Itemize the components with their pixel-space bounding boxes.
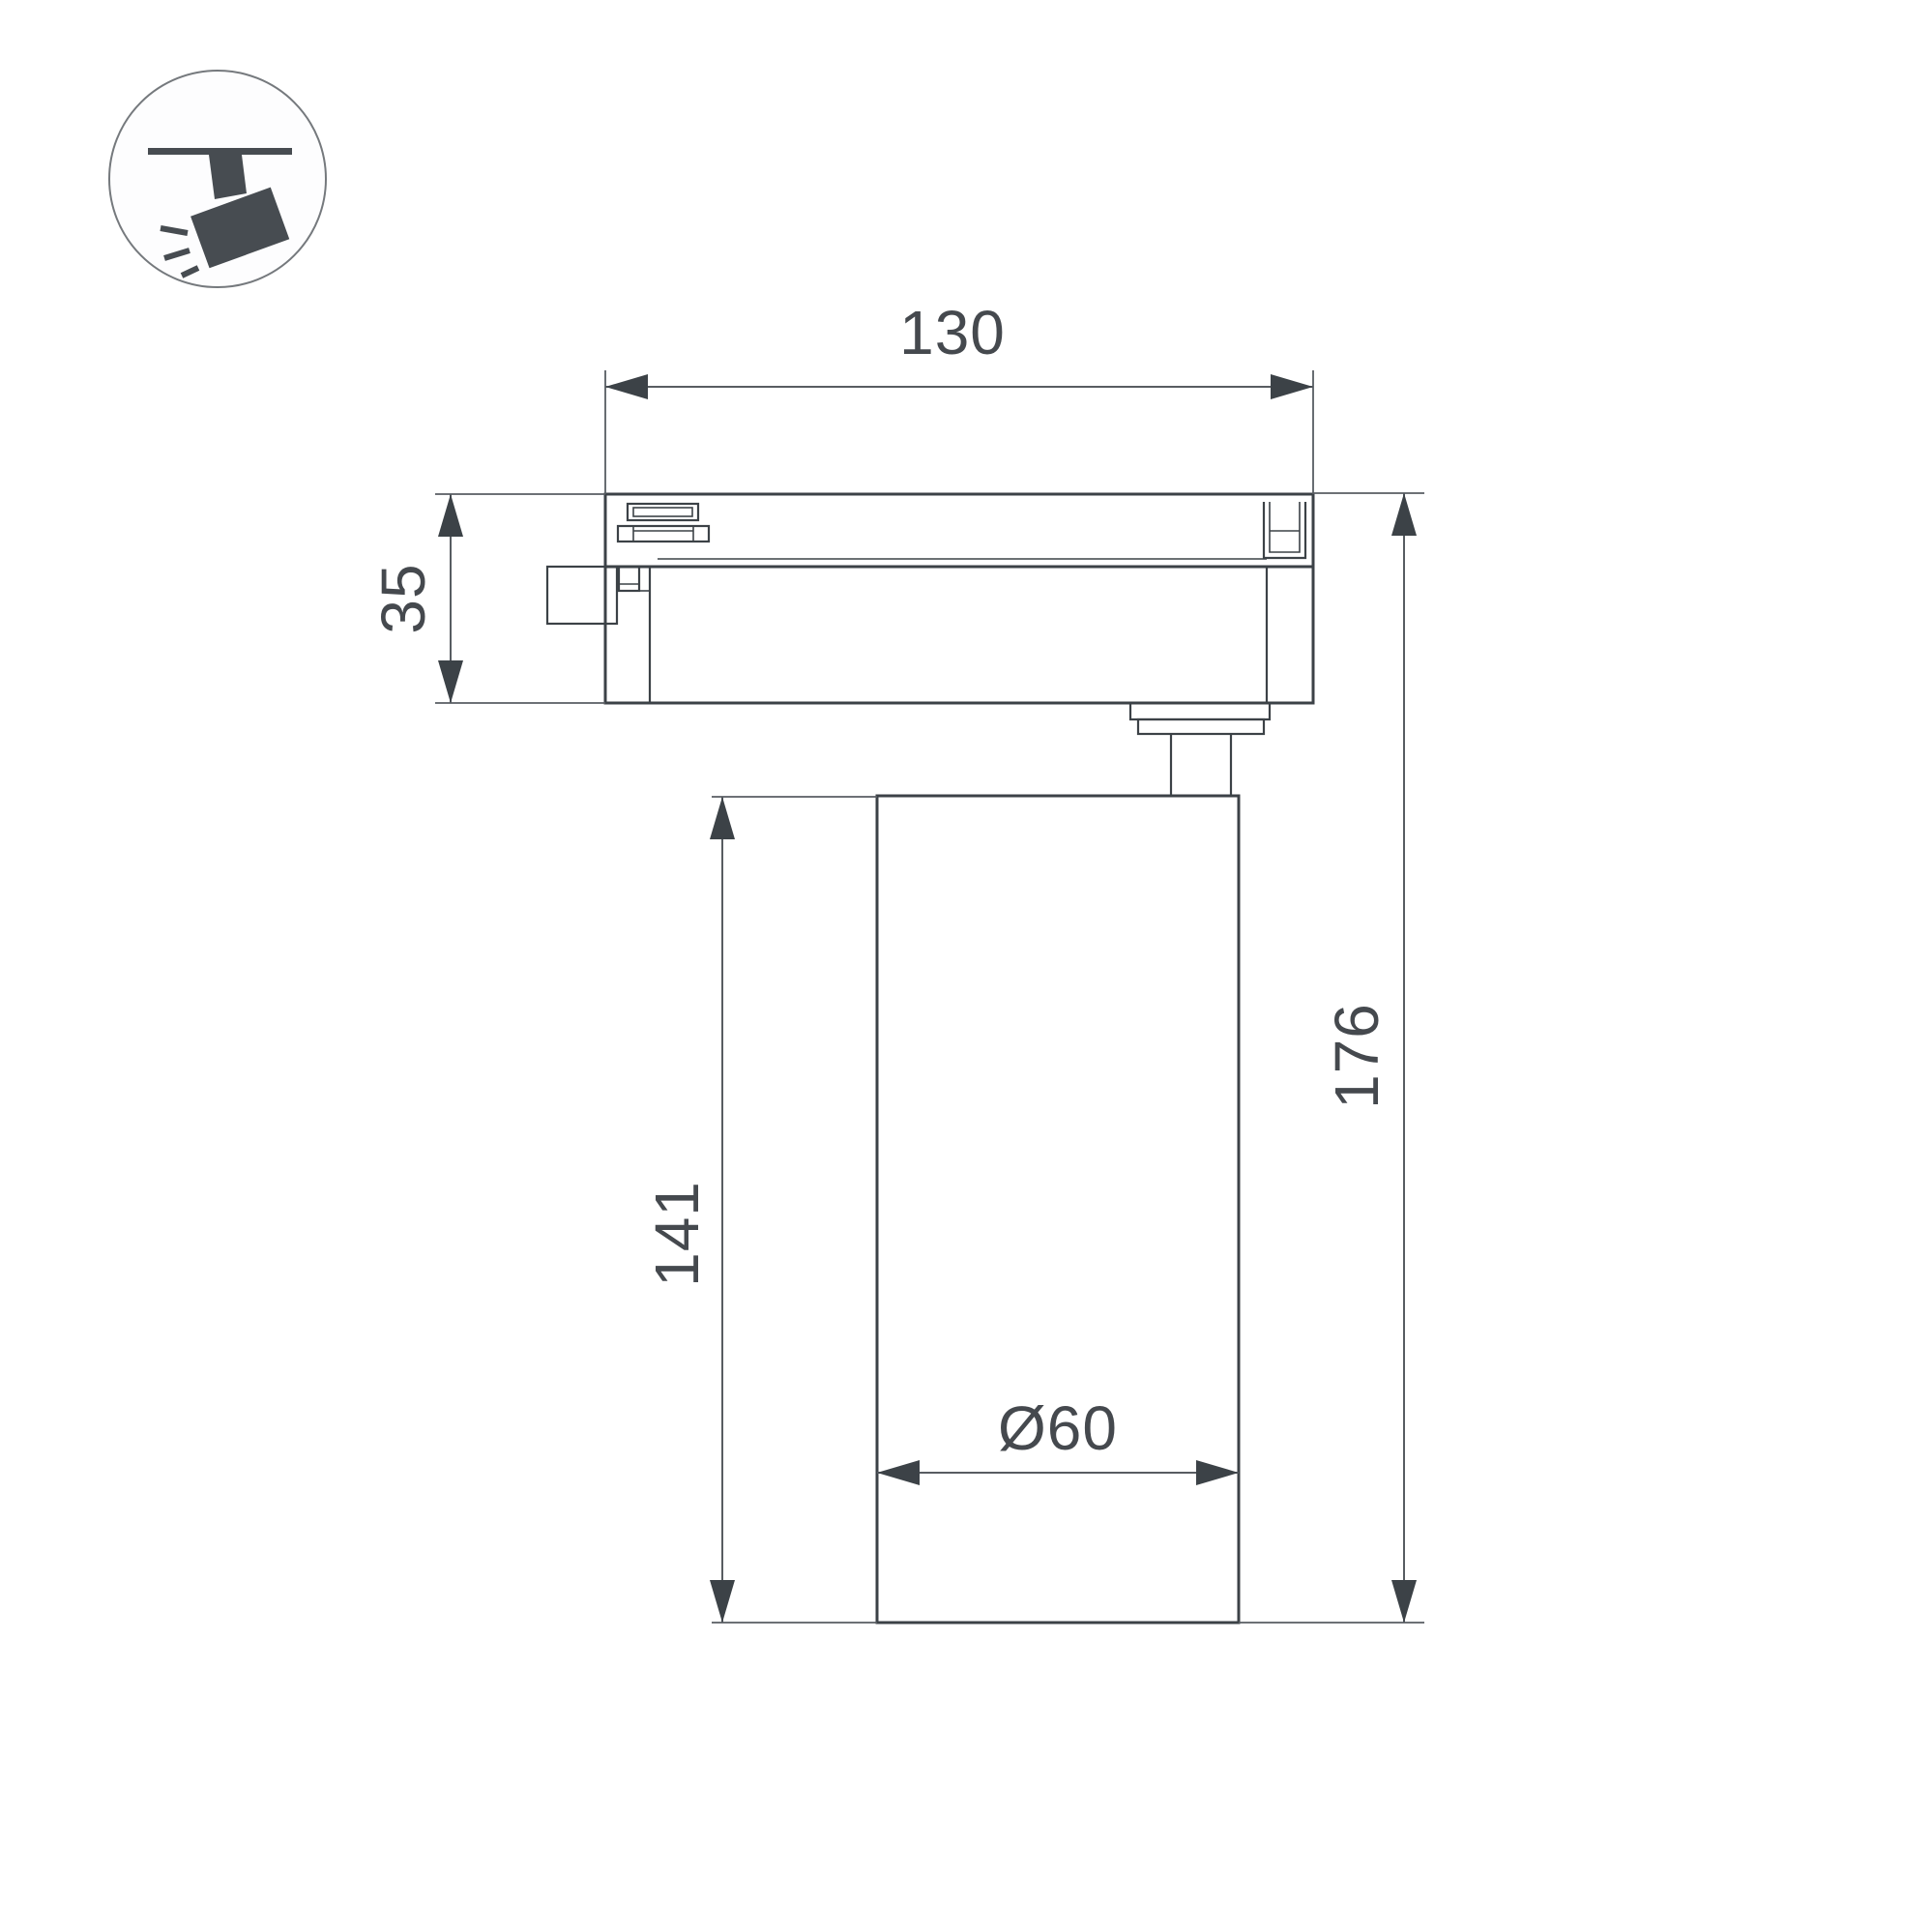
badge-stem	[209, 155, 247, 199]
dimension-141	[710, 797, 877, 1623]
technical-drawing	[0, 0, 1932, 1932]
adapter-lock-lever	[547, 567, 650, 624]
dimension-label-body-height: 141	[646, 1181, 708, 1287]
adapter-contact-clip-1	[628, 504, 698, 520]
dimension-35	[435, 494, 605, 703]
mounting-stem	[1130, 703, 1270, 796]
dimension-label-track-width: 130	[899, 302, 1006, 364]
dimension-drawing-canvas: 130 35 141 176 Ø60	[0, 0, 1932, 1932]
dimension-label-body-diameter: Ø60	[998, 1397, 1118, 1459]
adapter-u-clip	[1264, 502, 1305, 558]
badge-ceiling-bar	[148, 148, 292, 155]
lamp-body	[877, 796, 1239, 1623]
track-spotlight-icon	[109, 71, 326, 287]
adapter-contact-clip-2	[618, 526, 709, 542]
dimension-diameter-60	[877, 1460, 1239, 1485]
dimension-130	[605, 370, 1313, 494]
dimension-label-total-height: 176	[1326, 1003, 1388, 1109]
track-adapter-outline	[547, 494, 1313, 703]
dimension-label-adapter-height: 35	[372, 563, 434, 633]
